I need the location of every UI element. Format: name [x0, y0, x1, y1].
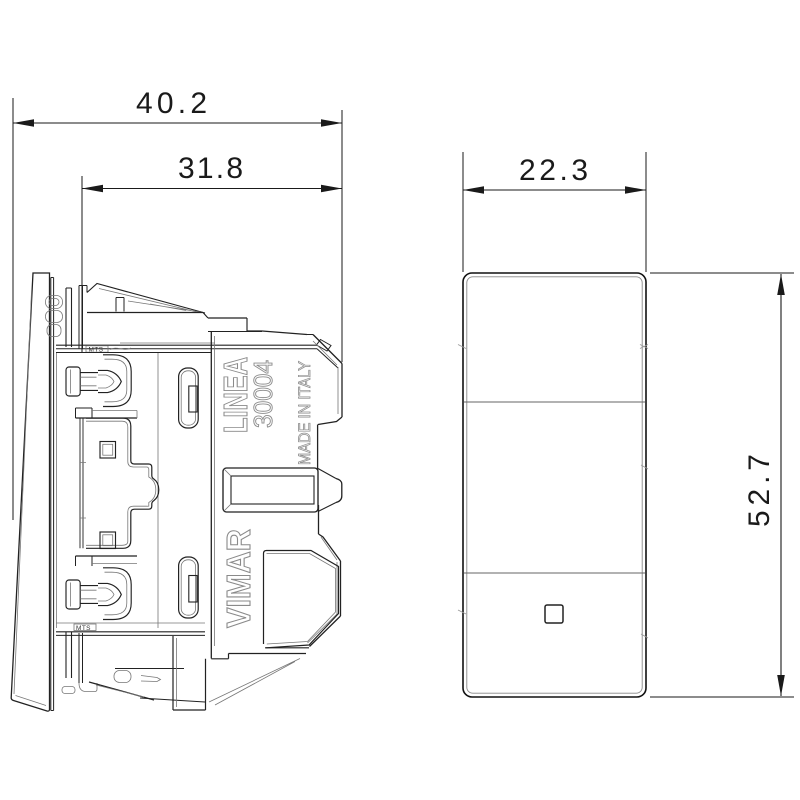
rocker-button [11, 273, 49, 711]
support-plate [51, 278, 57, 711]
terminal-unit-bottom [66, 556, 137, 620]
side-view [11, 273, 342, 711]
middle-bracket [80, 418, 159, 548]
molded-text-group: LINEA 30004 MADE IN ITALY VIMAR MTS MTS [76, 346, 314, 632]
dim-value-front-width: 22.3 [519, 154, 589, 187]
dim-value-overall-depth: 40.2 [136, 87, 208, 120]
technical-drawing-page: 40.2 31.8 22.3 52.7 [0, 0, 800, 800]
top-roof [56, 284, 342, 369]
dim-value-mechanism-depth: 31.8 [178, 152, 244, 185]
dim-value-front-height: 52.7 [743, 453, 776, 527]
arrow-down-icon [777, 675, 785, 696]
terminal-plunger-bottom [66, 580, 121, 609]
arrow-up-icon [777, 274, 785, 295]
arrow-right-icon [321, 119, 342, 127]
dimension-front-width: 22.3 [463, 152, 646, 272]
body-slot-top [179, 368, 199, 428]
front-view [458, 273, 648, 697]
drawing-svg: 40.2 31.8 22.3 52.7 [0, 0, 800, 800]
body-slot-bottom [179, 557, 199, 618]
front-outline [463, 273, 646, 697]
hinge-cluster-top [46, 286, 88, 350]
origin-text: MADE IN ITALY [296, 361, 314, 465]
brand-text: VIMAR [220, 529, 257, 628]
terminal-plunger-top [66, 367, 121, 396]
arrow-right-icon [625, 186, 646, 194]
arrow-left-icon [463, 186, 484, 194]
terminal-unit-top [66, 355, 137, 418]
arrow-left-icon [13, 119, 34, 127]
arrow-left-icon [82, 185, 103, 193]
side-clip-ticks [458, 345, 648, 639]
front-inner-outline [467, 277, 642, 693]
model-text: 30004 [248, 360, 278, 428]
dimension-front-height: 52.7 [650, 273, 794, 697]
terminal-marking-top: MTS [89, 346, 104, 353]
bottom-flange [56, 623, 206, 710]
dimension-mechanism-depth: 31.8 [82, 152, 342, 352]
led-window [545, 605, 563, 623]
arrow-right-icon [321, 185, 342, 193]
extension-lines [650, 273, 794, 697]
terminal-marking-bottom: MTS [76, 625, 91, 632]
